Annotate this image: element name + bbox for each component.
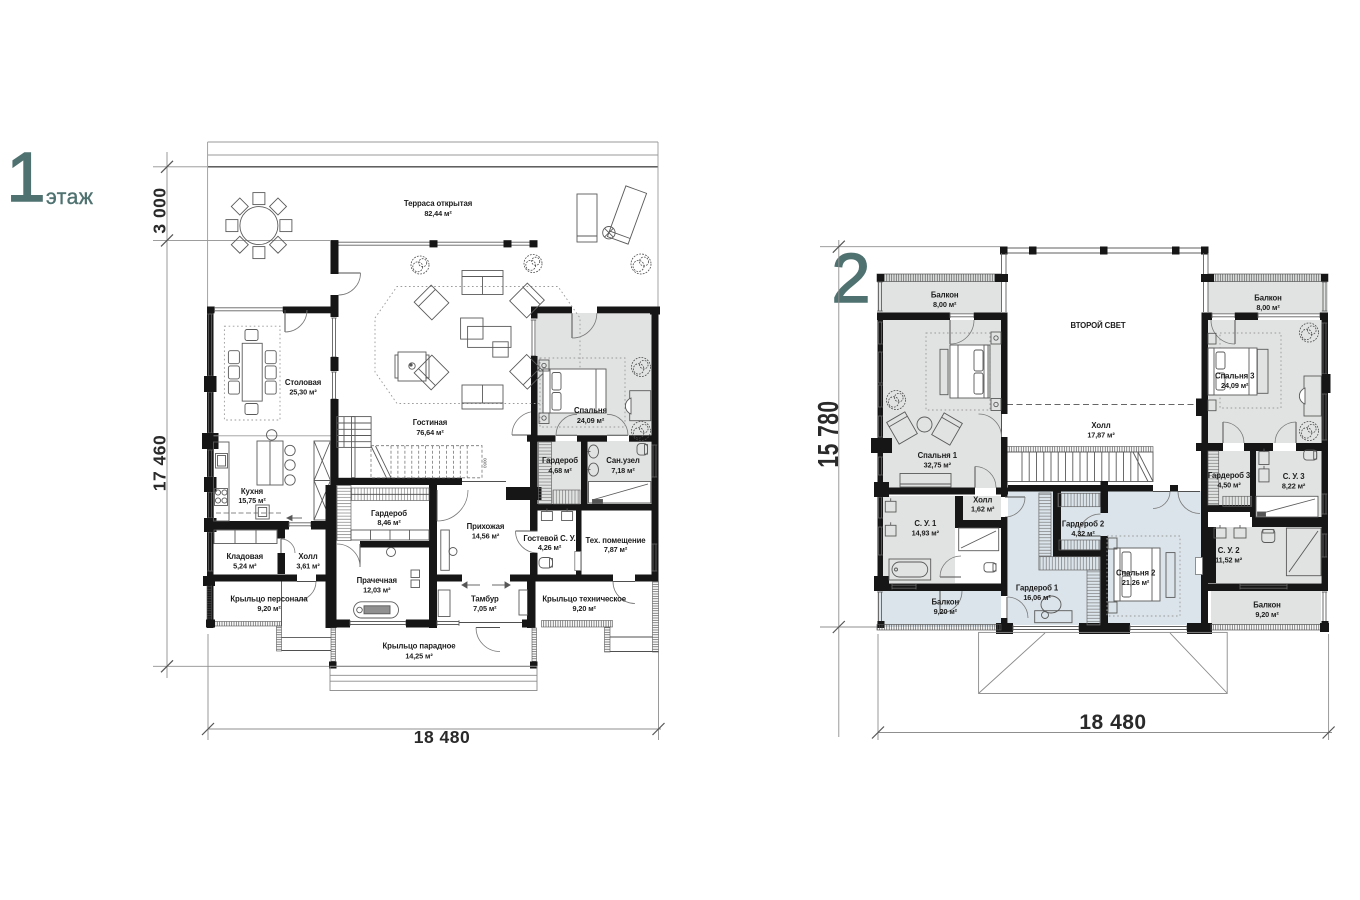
svg-text:С. У. 1: С. У. 1 [914, 519, 937, 528]
svg-text:2: 2 [832, 239, 871, 317]
svg-text:Холл: Холл [298, 552, 317, 561]
svg-text:Тех. помещение: Тех. помещение [585, 536, 646, 545]
svg-text:Балкон: Балкон [1254, 294, 1282, 303]
svg-text:25,30 м²: 25,30 м² [289, 388, 317, 397]
svg-text:Крыльцо техническое: Крыльцо техническое [542, 595, 626, 604]
svg-text:Тамбур: Тамбур [471, 595, 499, 604]
svg-text:Прихожая: Прихожая [467, 522, 505, 531]
svg-text:11,52 м²: 11,52 м² [1215, 556, 1243, 565]
svg-text:8,46 м²: 8,46 м² [377, 518, 401, 527]
svg-text:24,09 м²: 24,09 м² [1221, 381, 1249, 390]
svg-text:8,00 м²: 8,00 м² [1256, 303, 1280, 312]
svg-text:17 460: 17 460 [150, 435, 170, 492]
svg-text:Гостевой С. У.: Гостевой С. У. [523, 534, 575, 543]
svg-text:Балкон: Балкон [932, 598, 960, 607]
svg-text:14,25 м²: 14,25 м² [405, 652, 433, 661]
svg-text:Холл: Холл [1091, 421, 1110, 430]
svg-text:14,93 м²: 14,93 м² [912, 529, 940, 538]
svg-text:Сан.узел: Сан.узел [606, 456, 640, 465]
svg-text:32,75 м²: 32,75 м² [924, 461, 952, 470]
svg-text:Кладовая: Кладовая [227, 552, 264, 561]
svg-text:18 480: 18 480 [1079, 711, 1146, 734]
svg-text:9,20 м²: 9,20 м² [257, 604, 281, 613]
svg-text:3,61 м²: 3,61 м² [296, 562, 320, 571]
svg-text:Кухня: Кухня [241, 487, 263, 496]
svg-text:Гардероб 1: Гардероб 1 [1016, 584, 1059, 593]
svg-text:Терраса открытая: Терраса открытая [404, 199, 472, 208]
svg-text:1: 1 [7, 138, 46, 216]
svg-text:7,05 м²: 7,05 м² [473, 604, 497, 613]
svg-text:Гардероб 2: Гардероб 2 [1062, 520, 1105, 529]
svg-text:Крыльцо персонала: Крыльцо персонала [230, 595, 308, 604]
svg-text:Спальня 3: Спальня 3 [1215, 372, 1255, 381]
svg-text:7,87 м²: 7,87 м² [604, 545, 628, 554]
svg-text:Гостиная: Гостиная [413, 418, 447, 427]
svg-text:Гардероб: Гардероб [371, 509, 407, 518]
svg-text:8,00 м²: 8,00 м² [933, 300, 957, 309]
svg-text:4,32 м²: 4,32 м² [1071, 529, 1095, 538]
svg-text:5,24 м²: 5,24 м² [233, 562, 257, 571]
svg-text:С. У. 2: С. У. 2 [1218, 546, 1241, 555]
svg-text:Гардероб: Гардероб [542, 456, 578, 465]
svg-text:0900: 0900 [483, 457, 488, 468]
svg-text:Спальня: Спальня [574, 406, 607, 415]
svg-text:Гардероб 3: Гардероб 3 [1208, 471, 1251, 480]
svg-text:4,50 м²: 4,50 м² [1217, 481, 1241, 490]
svg-text:9,20 м²: 9,20 м² [934, 607, 958, 616]
svg-text:7,18 м²: 7,18 м² [611, 466, 635, 475]
svg-text:24,09 м²: 24,09 м² [577, 416, 605, 425]
svg-text:82,44 м²: 82,44 м² [424, 209, 452, 218]
svg-text:12,03 м²: 12,03 м² [363, 586, 391, 595]
svg-text:Столовая: Столовая [285, 378, 321, 387]
svg-text:Балкон: Балкон [1253, 601, 1281, 610]
svg-text:9,20 м²: 9,20 м² [1255, 610, 1279, 619]
svg-text:4,68 м²: 4,68 м² [548, 466, 572, 475]
svg-text:Прачечная: Прачечная [357, 576, 397, 585]
svg-text:16,06 м²: 16,06 м² [1023, 593, 1051, 602]
svg-text:1,62 м²: 1,62 м² [971, 505, 995, 514]
svg-text:Крыльцо парадное: Крыльцо парадное [383, 642, 457, 651]
svg-text:4,26 м²: 4,26 м² [538, 543, 562, 552]
svg-text:3 000: 3 000 [150, 187, 170, 233]
svg-text:Балкон: Балкон [931, 291, 959, 300]
svg-text:Спальня 1: Спальня 1 [918, 451, 958, 460]
svg-text:С. У. 3: С. У. 3 [1283, 472, 1306, 481]
svg-text:15 780: 15 780 [813, 400, 845, 467]
svg-text:Холл: Холл [973, 496, 992, 505]
svg-text:17,87 м²: 17,87 м² [1087, 431, 1115, 440]
svg-text:15,75 м²: 15,75 м² [238, 496, 266, 505]
svg-text:8,22 м²: 8,22 м² [1282, 482, 1306, 491]
svg-text:21,26 м²: 21,26 м² [1122, 578, 1150, 587]
svg-text:Спальня 2: Спальня 2 [1116, 569, 1156, 578]
svg-text:ВТОРОЙ СВЕТ: ВТОРОЙ СВЕТ [1070, 321, 1125, 330]
svg-text:76,64 м²: 76,64 м² [416, 428, 444, 437]
svg-text:18 480: 18 480 [414, 727, 471, 747]
svg-text:этаж: этаж [46, 186, 93, 209]
svg-text:14,56 м²: 14,56 м² [472, 532, 500, 541]
svg-text:9,20 м²: 9,20 м² [573, 604, 597, 613]
